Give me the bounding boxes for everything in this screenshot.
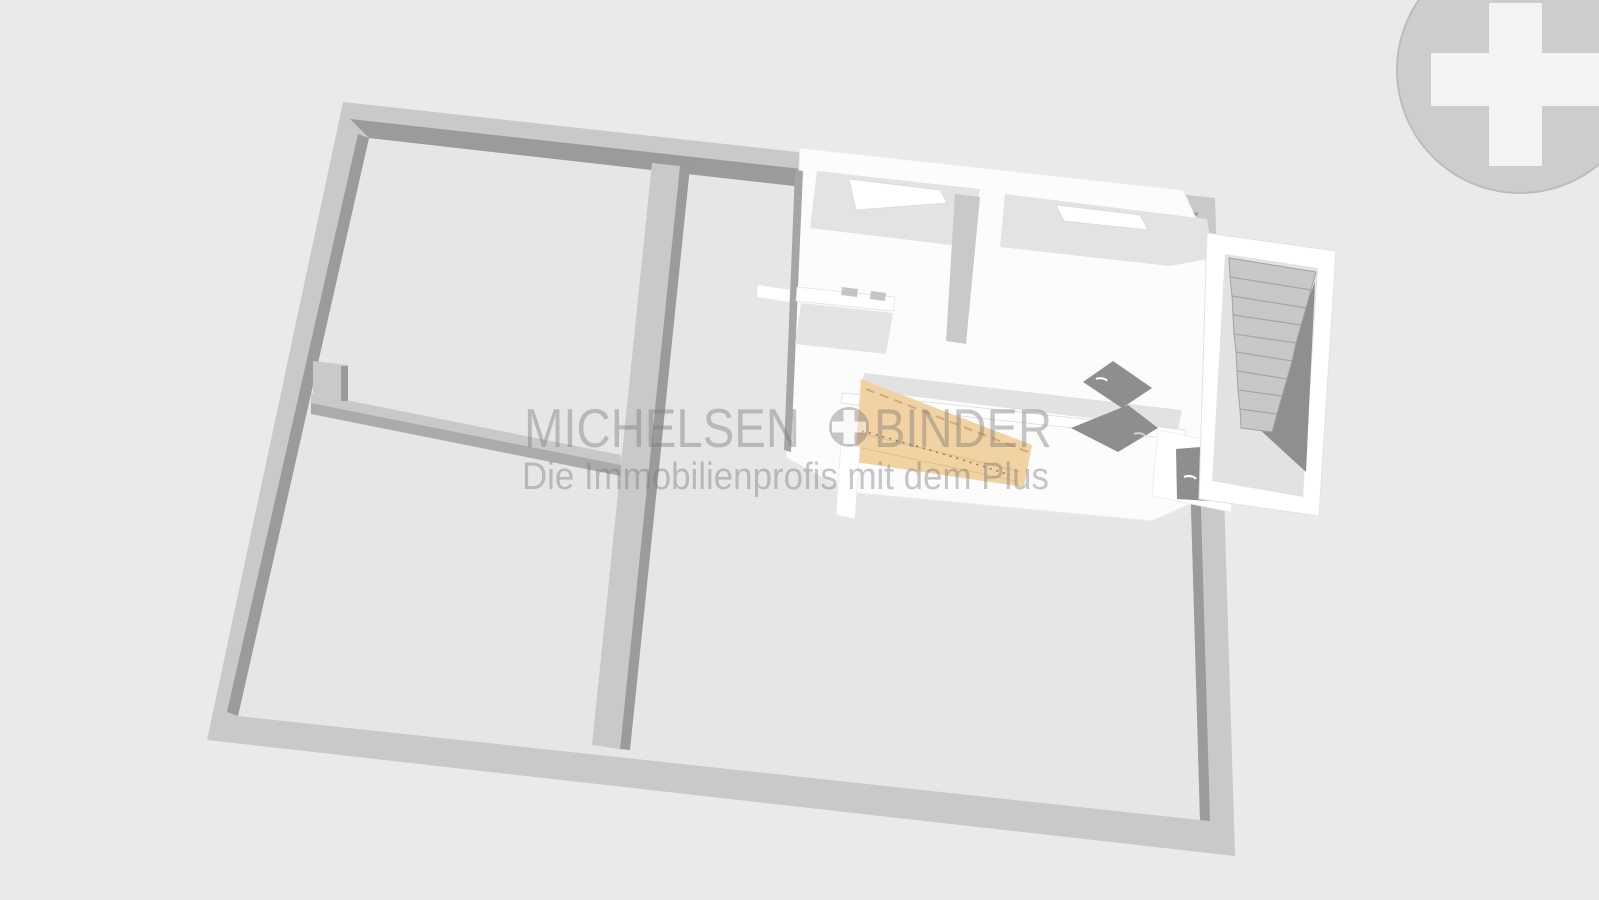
watermark-line1-left: MICHELSEN [524, 397, 800, 459]
logo-plus-vbar [1489, 3, 1542, 166]
watermark-line2: Die Immobilienprofis mit dem Plus [522, 456, 1049, 498]
watermark: MICHELSEN BINDER Die Immobilienprofis mi… [522, 397, 1052, 498]
watermark-plus-icon [829, 407, 869, 447]
watermark-line1-right: BINDER [874, 397, 1052, 459]
wall-pilaster-shadow [341, 366, 348, 401]
staircase-enclosure [1199, 233, 1336, 516]
floorplan-canvas: MICHELSEN BINDER Die Immobilienprofis mi… [0, 0, 1599, 900]
floorplan-3d-view[interactable]: MICHELSEN BINDER Die Immobilienprofis mi… [0, 0, 1599, 900]
watermark-plus-vbar [844, 410, 855, 444]
